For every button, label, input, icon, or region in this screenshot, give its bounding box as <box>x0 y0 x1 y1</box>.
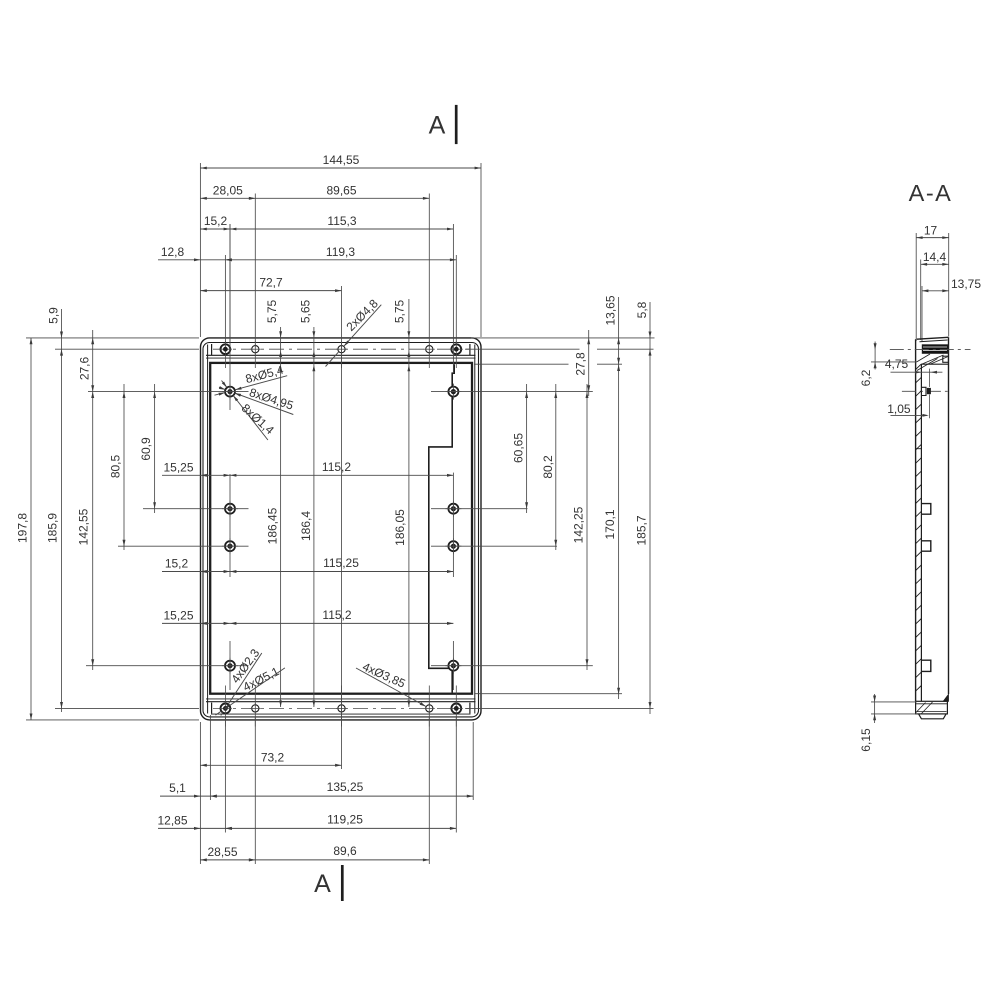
svg-text:27,6: 27,6 <box>78 356 92 380</box>
svg-text:80,2: 80,2 <box>541 455 555 479</box>
svg-text:15,25: 15,25 <box>163 608 193 622</box>
svg-text:119,3: 119,3 <box>326 245 355 259</box>
svg-text:144,55: 144,55 <box>323 153 360 167</box>
svg-text:5,75: 5,75 <box>265 299 279 323</box>
svg-text:186,4: 186,4 <box>299 511 313 541</box>
svg-text:186,45: 186,45 <box>266 507 280 544</box>
svg-text:142,55: 142,55 <box>77 508 91 545</box>
svg-text:5,65: 5,65 <box>299 299 313 323</box>
svg-text:15,2: 15,2 <box>165 557 189 571</box>
svg-text:28,55: 28,55 <box>207 845 237 859</box>
svg-text:5,8: 5,8 <box>635 301 649 318</box>
svg-text:119,25: 119,25 <box>327 812 363 826</box>
svg-text:5,75: 5,75 <box>393 299 407 323</box>
svg-text:89,65: 89,65 <box>326 183 356 197</box>
svg-text:A: A <box>314 870 331 898</box>
svg-text:14,4: 14,4 <box>923 250 947 264</box>
svg-text:5,9: 5,9 <box>47 307 61 324</box>
svg-text:28,05: 28,05 <box>213 183 243 197</box>
svg-text:185,9: 185,9 <box>46 513 60 543</box>
svg-text:4,75: 4,75 <box>885 357 909 371</box>
svg-text:12,8: 12,8 <box>161 245 185 259</box>
svg-text:60,65: 60,65 <box>512 433 526 463</box>
svg-text:73,2: 73,2 <box>261 750 285 764</box>
svg-text:60,9: 60,9 <box>139 437 153 461</box>
svg-text:15,25: 15,25 <box>163 460 193 474</box>
svg-text:135,25: 135,25 <box>327 780 364 794</box>
svg-text:15,2: 15,2 <box>204 214 228 228</box>
svg-text:185,7: 185,7 <box>635 515 649 545</box>
svg-text:80,5: 80,5 <box>109 454 123 478</box>
svg-text:170,1: 170,1 <box>603 509 617 539</box>
svg-text:197,8: 197,8 <box>16 513 30 543</box>
svg-text:6,15: 6,15 <box>859 728 873 752</box>
svg-text:27,8: 27,8 <box>574 352 588 376</box>
svg-text:13,75: 13,75 <box>951 277 981 291</box>
svg-text:115,2: 115,2 <box>322 460 351 474</box>
svg-text:12,85: 12,85 <box>157 813 187 827</box>
svg-text:6,2: 6,2 <box>859 369 873 386</box>
svg-text:17: 17 <box>924 224 938 238</box>
svg-text:89,6: 89,6 <box>333 844 357 858</box>
svg-text:72,7: 72,7 <box>259 276 283 290</box>
svg-text:142,25: 142,25 <box>572 506 586 543</box>
svg-text:A: A <box>429 112 446 140</box>
svg-text:13,65: 13,65 <box>604 295 618 325</box>
svg-text:1,05: 1,05 <box>887 402 911 416</box>
svg-text:5,1: 5,1 <box>169 781 186 795</box>
svg-text:186,05: 186,05 <box>393 509 407 546</box>
svg-text:115,2: 115,2 <box>322 608 351 622</box>
svg-text:115,3: 115,3 <box>327 214 356 228</box>
svg-text:A-A: A-A <box>909 180 953 206</box>
svg-text:115,25: 115,25 <box>323 556 359 570</box>
